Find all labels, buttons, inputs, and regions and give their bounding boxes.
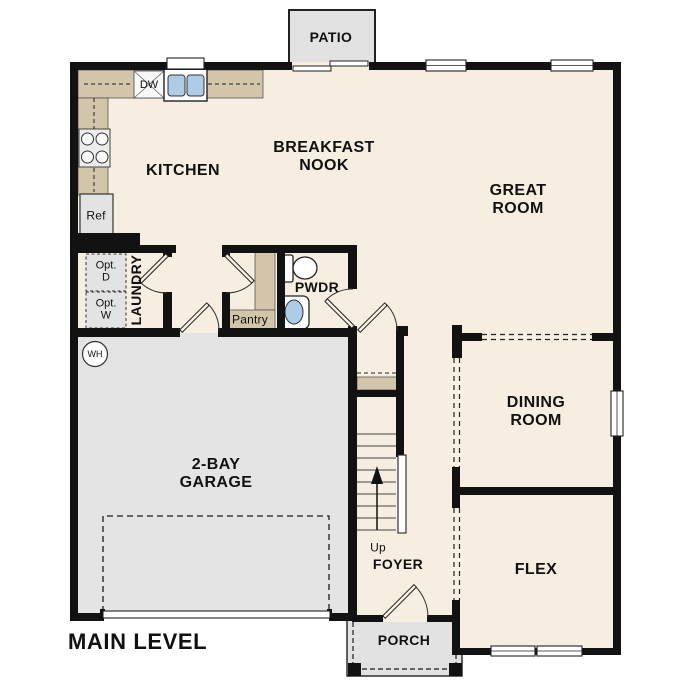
refrigerator [80,194,113,238]
optional-dryer-box [86,254,126,291]
dishwasher [134,71,164,98]
stair-closet-shelf [357,377,397,390]
kitchen-sink [164,69,207,101]
water-heater [83,342,108,367]
main-level-title: MAIN LEVEL [68,629,207,655]
patio-structure [289,10,375,67]
stair-handrail [398,455,406,533]
sliding-patio-door [292,61,369,71]
floor-fills [74,66,617,651]
porch-structure [347,620,462,676]
optional-washer-box [86,292,126,328]
range-cooktop [79,129,110,167]
garage-door [103,611,330,618]
floorplan-drawing [0,0,687,687]
kitchen-window [167,58,204,69]
floorplan-page: PATIO KITCHEN BREAKFAST NOOK GREAT ROOM … [0,0,687,687]
